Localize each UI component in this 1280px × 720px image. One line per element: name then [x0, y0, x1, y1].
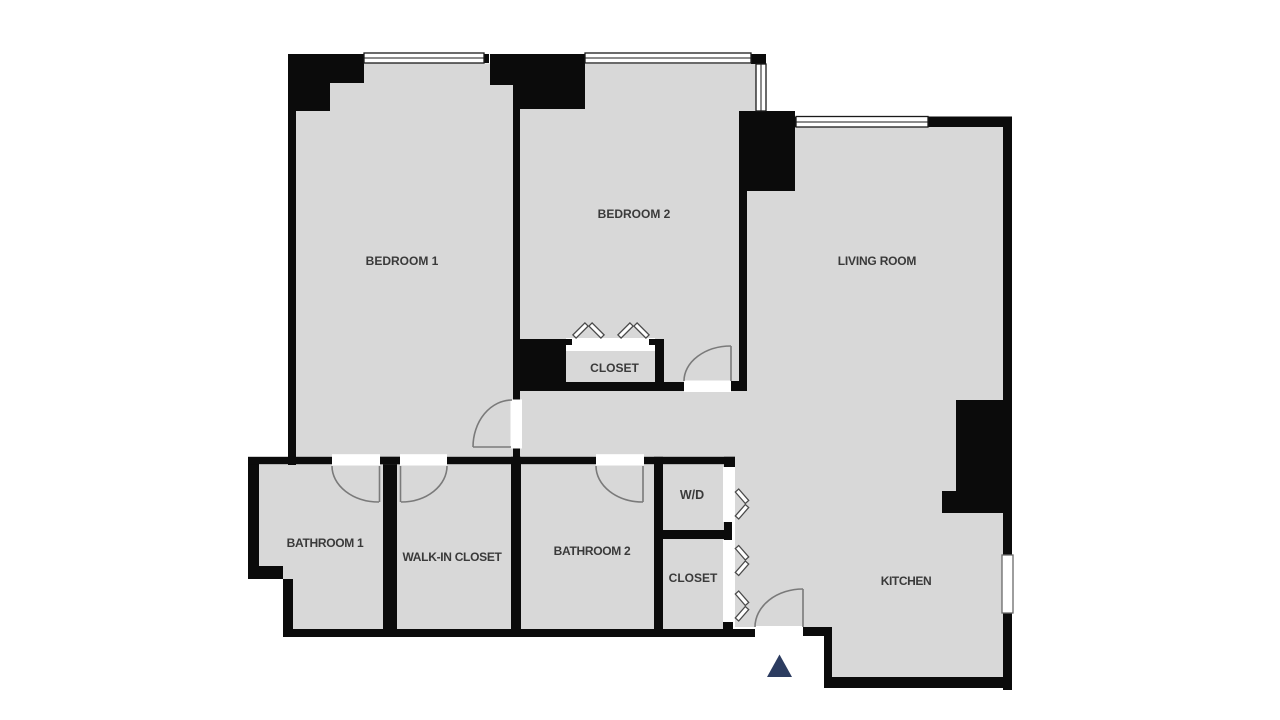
- svg-text:LIVING ROOM: LIVING ROOM: [838, 254, 917, 268]
- svg-text:CLOSET: CLOSET: [590, 361, 639, 375]
- svg-text:CLOSET: CLOSET: [669, 571, 718, 585]
- svg-text:BATHROOM 1: BATHROOM 1: [287, 536, 364, 550]
- svg-text:W/D: W/D: [680, 488, 704, 502]
- svg-text:KITCHEN: KITCHEN: [881, 574, 932, 588]
- svg-text:BEDROOM 1: BEDROOM 1: [366, 254, 439, 268]
- svg-text:BATHROOM 2: BATHROOM 2: [554, 544, 631, 558]
- svg-text:WALK-IN CLOSET: WALK-IN CLOSET: [402, 550, 502, 564]
- svg-text:BEDROOM 2: BEDROOM 2: [598, 207, 671, 221]
